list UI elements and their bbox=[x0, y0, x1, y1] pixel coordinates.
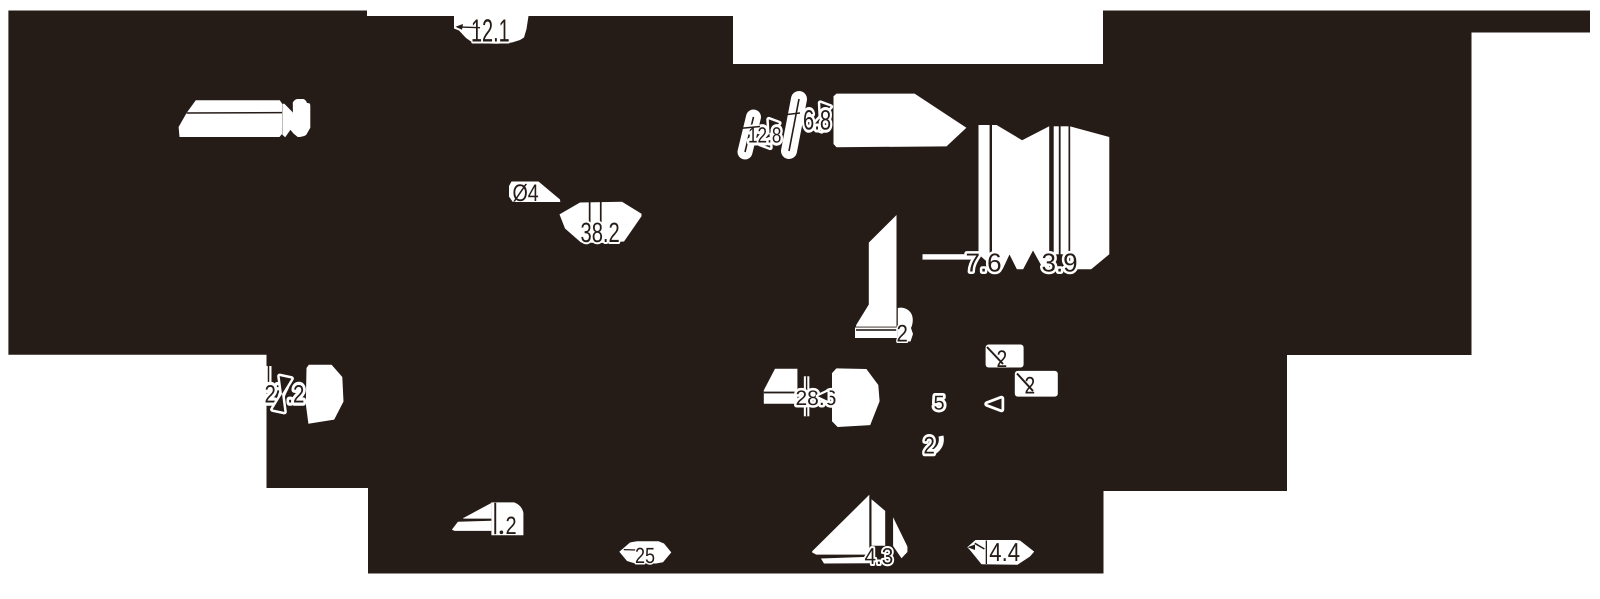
svg-text:2: 2 bbox=[924, 433, 935, 460]
svg-text:6.8: 6.8 bbox=[803, 105, 831, 136]
svg-text:4.4: 4.4 bbox=[989, 537, 1020, 567]
svg-text:3.9: 3.9 bbox=[1042, 248, 1078, 278]
svg-text:12.1: 12.1 bbox=[471, 13, 510, 49]
svg-text:4.3: 4.3 bbox=[865, 543, 894, 569]
svg-text:28.6: 28.6 bbox=[796, 387, 837, 410]
svg-text:12.8: 12.8 bbox=[748, 123, 781, 148]
svg-text:5: 5 bbox=[934, 393, 945, 415]
svg-text:2: 2 bbox=[506, 512, 517, 540]
svg-text:38.2: 38.2 bbox=[581, 217, 620, 248]
svg-text:25: 25 bbox=[635, 543, 655, 568]
svg-text:2: 2 bbox=[997, 346, 1008, 373]
svg-text:Ø4: Ø4 bbox=[513, 180, 539, 207]
svg-text:7.6: 7.6 bbox=[966, 248, 1002, 278]
svg-text:2: 2 bbox=[897, 321, 908, 348]
svg-text:2: 2 bbox=[1025, 373, 1036, 400]
